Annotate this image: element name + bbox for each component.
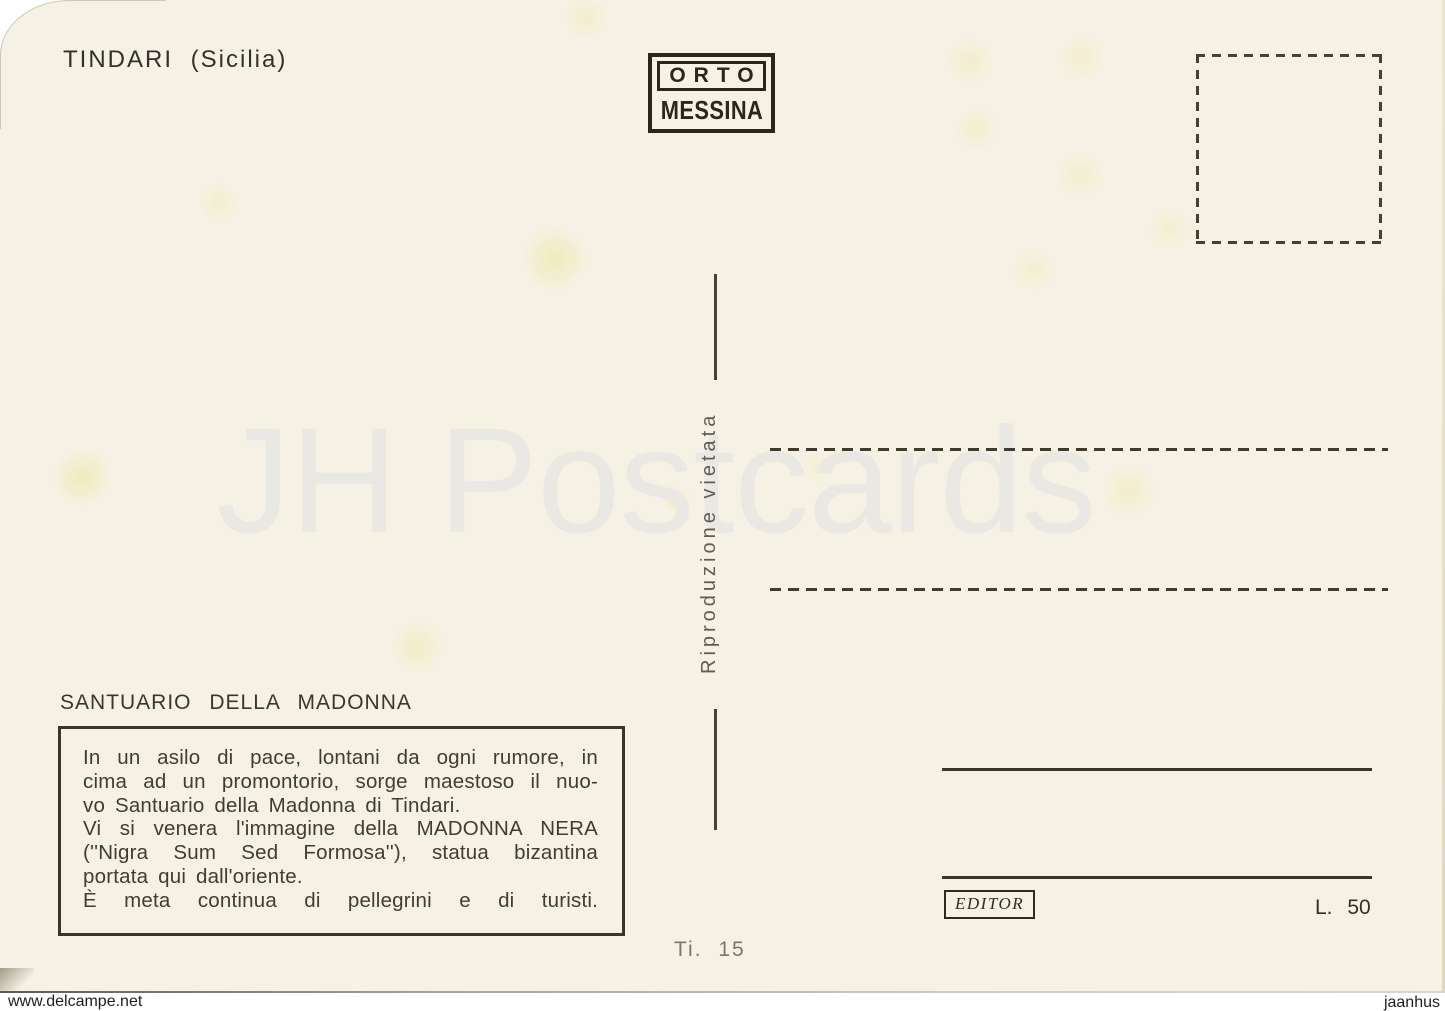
watermark-delcampe: www.delcampe.net [8, 993, 142, 1011]
watermark-jaanhus: jaanhus [1384, 994, 1440, 1011]
card-edge-shadow [0, 968, 34, 993]
paper-stain [952, 108, 1000, 150]
stamp-box-edge [1379, 54, 1382, 244]
paper-stain [196, 182, 240, 222]
description-line: Vi si venera l'immagine della MADONNA NE… [83, 817, 598, 841]
publisher-city: MESSINA [660, 95, 762, 126]
stamp-box-edge [1196, 54, 1382, 57]
publisher-name: ORTO [669, 64, 761, 88]
paper-stain [1146, 208, 1192, 250]
paper-stain [1054, 150, 1106, 198]
watermark-jh-postcards: JH Postcards [216, 394, 1096, 567]
description-line: (''Nigra Sum Sed Formosa''), statua biza… [83, 841, 598, 865]
paper-stain [560, 0, 612, 36]
description-line: cima ad un promontorio, sorge maestoso i… [83, 770, 598, 794]
paper-stain [1100, 462, 1158, 518]
description-line: portata qui dall'oriente. [83, 865, 598, 889]
publisher-logo-bottom-cell: MESSINA [652, 91, 771, 129]
postcard-back: JH Postcards TINDARI (Sicilia) ORTO MESS… [0, 0, 1445, 993]
editor-label: EDITOR [955, 894, 1024, 913]
section-heading: SANTUARIO DELLA MADONNA [60, 691, 412, 715]
price-label: L. 50 [1315, 896, 1371, 920]
publisher-logo: ORTO MESSINA [648, 53, 775, 133]
description-line: È meta continua di pellegrini e di turis… [83, 889, 598, 913]
paper-stain [1010, 248, 1058, 290]
postcard-scan-page: JH Postcards TINDARI (Sicilia) ORTO MESS… [0, 0, 1445, 1011]
series-number: Ti. 15 [674, 938, 746, 962]
location-title: TINDARI (Sicilia) [63, 46, 287, 74]
reproduction-note: Riproduzione vietata [686, 402, 732, 684]
editor-stamp: EDITOR [944, 890, 1035, 919]
page-footer: www.delcampe.net jaanhus [0, 993, 1445, 1011]
description-box: In un asilo di pace, lontani da ogni rum… [58, 726, 625, 936]
center-divider-bottom [714, 709, 717, 830]
address-solid-line [942, 876, 1372, 879]
publisher-logo-top-cell: ORTO [657, 61, 766, 91]
center-divider-top [714, 274, 717, 380]
paper-stain [1056, 36, 1106, 78]
description-line: vo Santuario della Madonna di Tindari. [83, 794, 598, 818]
stamp-box-edge [1196, 241, 1382, 244]
paper-stain [388, 620, 446, 674]
description-line: In un asilo di pace, lontani da ogni rum… [83, 746, 598, 770]
paper-stain [944, 38, 996, 84]
address-dashed-line [770, 448, 1388, 451]
paper-stain [52, 448, 112, 506]
stamp-box [1196, 54, 1382, 244]
address-dashed-line [770, 588, 1388, 591]
address-solid-line [942, 768, 1372, 771]
paper-stain [520, 228, 590, 290]
stamp-box-edge [1196, 54, 1199, 244]
